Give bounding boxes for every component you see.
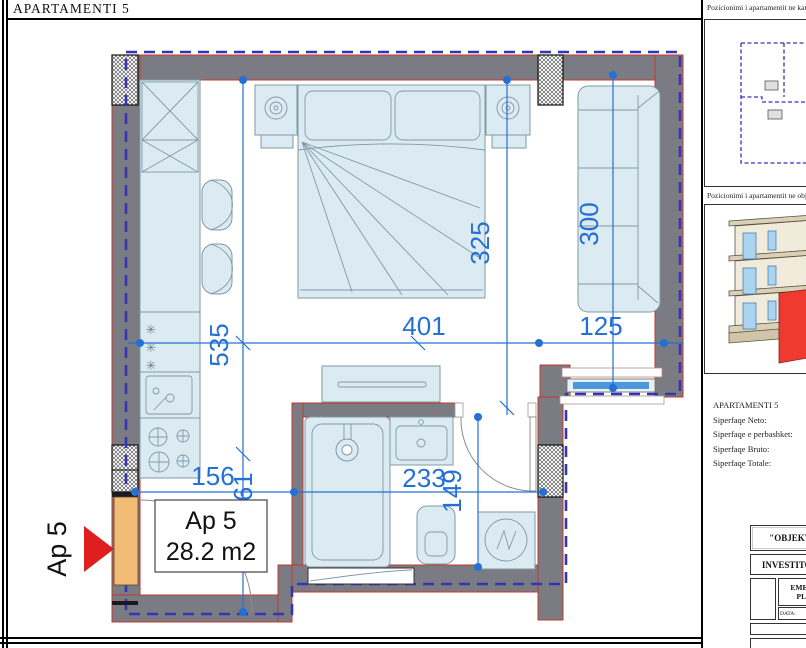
bathroom-door xyxy=(455,403,536,491)
titleblock-plani: PLA xyxy=(797,592,806,601)
info-title: APARTAMENTI 5 xyxy=(713,398,793,413)
dim-300: 300 xyxy=(574,202,604,245)
titleblock-logo-cell xyxy=(750,578,776,620)
titleblock-emertimi: EMERT xyxy=(790,583,806,592)
floor-position-map-drawing xyxy=(705,20,806,184)
sidebar-kat-label: Pozicionimi i apartamentit ne kat xyxy=(707,3,806,12)
apartment-label-box: Ap 5 28.2 m2 xyxy=(155,500,267,572)
dim-233: 233 xyxy=(402,463,445,493)
titleblock-investitor: INVESTITOR xyxy=(750,554,806,575)
info-bruto: Siperfaqe Bruto: xyxy=(713,442,793,457)
titleblock-empty-row xyxy=(750,638,806,648)
title-block: "OBJEKT INVESTITOR EMERT PLA DATA: xyxy=(750,525,806,648)
dim-401: 401 xyxy=(402,311,445,341)
titleblock-row3: EMERT PLA DATA: xyxy=(750,578,806,620)
freezer-star-icon: ✳ xyxy=(146,323,157,338)
bed xyxy=(298,85,485,298)
building-3d-drawing xyxy=(705,205,806,371)
titleblock-empty-row xyxy=(750,623,806,635)
dim-156: 156 xyxy=(191,461,234,491)
sofa xyxy=(578,86,660,312)
entry-marker: Ap 5 xyxy=(42,521,114,577)
dining-chairs xyxy=(202,180,233,294)
freezer-star-icon: ✳ xyxy=(146,359,157,374)
window-south xyxy=(308,568,414,584)
apartment-info-block: APARTAMENTI 5 Siperfaqe Neto: Siperfaqe … xyxy=(713,398,793,471)
entry-apartment-label: Ap 5 xyxy=(42,521,72,577)
bathroom-sink xyxy=(390,417,453,465)
apartment-name: Ap 5 xyxy=(185,507,236,535)
tv-cabinet xyxy=(322,366,440,402)
sidebar-objekt-label: Pozicionimi i apartamentit ne objekt xyxy=(707,191,806,200)
apartment-area: 28.2 m2 xyxy=(166,538,256,566)
info-neto: Siperfaqe Neto: xyxy=(713,413,793,428)
dim-125: 125 xyxy=(579,311,622,341)
blueprint-page: APARTAMENTI 5 xyxy=(0,0,806,648)
fridge-freezer-symbols: ✳ ✳ ✳ xyxy=(146,323,157,374)
highlighted-apartment-block xyxy=(779,289,806,363)
nightstand-right xyxy=(486,85,530,148)
info-totale: Siperfaqe Totale: xyxy=(713,456,793,471)
floor-plan: ✳ ✳ ✳ xyxy=(0,0,806,648)
unit-label-box xyxy=(765,81,778,90)
titleblock-data: DATA: xyxy=(778,607,806,620)
unit-label-box xyxy=(768,110,782,119)
titleblock-objekt: "OBJEKT xyxy=(750,525,806,551)
sidebar: Pozicionimi i apartamentit ne kat Pozici… xyxy=(703,0,806,648)
washing-machine xyxy=(478,512,535,569)
dim-325: 325 xyxy=(465,221,495,264)
titleblock-emertimi-cell: EMERT PLA xyxy=(778,578,806,606)
info-perbashket: Siperfaqe e perbashket: xyxy=(713,427,793,442)
floor-position-map xyxy=(704,19,806,187)
building-position-image xyxy=(704,204,806,374)
dim-535: 535 xyxy=(204,323,234,366)
toilet xyxy=(417,506,455,564)
entry-arrow-icon xyxy=(84,526,114,572)
nightstand-left xyxy=(255,85,297,148)
